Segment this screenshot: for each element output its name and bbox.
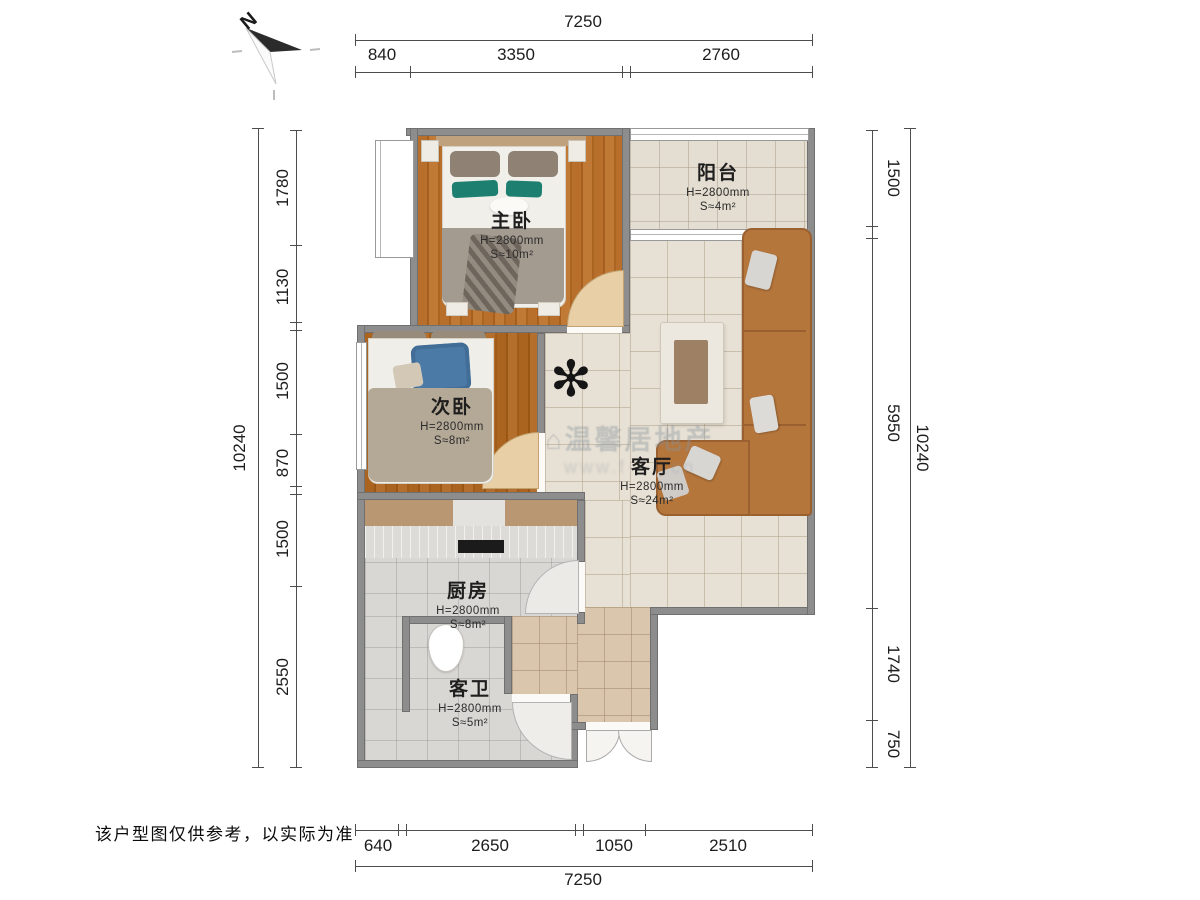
tick xyxy=(866,720,878,721)
dim-seg: 3350 xyxy=(481,45,551,65)
dim-seg: 5950 xyxy=(883,388,903,458)
window-glass-line xyxy=(380,141,381,257)
dim-seg: 1130 xyxy=(273,252,293,322)
tick xyxy=(866,238,878,239)
dim-seg: 1500 xyxy=(273,346,293,416)
dim-line xyxy=(355,72,812,73)
kitchen-counter-wood-left xyxy=(365,500,453,526)
tick xyxy=(812,824,813,836)
pillow-teal xyxy=(506,180,543,197)
pillow-small xyxy=(392,362,424,390)
window-glass-line xyxy=(361,343,362,469)
dim-seg: 2550 xyxy=(273,642,293,712)
tick xyxy=(812,66,813,78)
second-bedroom-window xyxy=(356,342,367,470)
tick xyxy=(630,66,631,78)
dim-line xyxy=(355,40,812,41)
tick xyxy=(904,128,916,129)
tick xyxy=(290,130,302,131)
dim-seg: 870 xyxy=(273,428,293,498)
tick xyxy=(622,66,623,78)
room-height: H=2800mm xyxy=(582,481,722,493)
tick xyxy=(866,767,878,768)
tick xyxy=(355,66,356,78)
room-name: 次卧 xyxy=(382,392,522,419)
dim-seg: 2510 xyxy=(693,836,763,856)
room-name: 厨房 xyxy=(398,576,538,603)
tick xyxy=(290,322,302,323)
cooktop xyxy=(458,540,504,553)
wall xyxy=(357,760,578,768)
room-name: 阳台 xyxy=(648,158,788,185)
room-area: S≈8m² xyxy=(382,435,522,447)
plant-icon: ✻ xyxy=(546,354,596,404)
dim-line xyxy=(296,130,297,768)
room-height: H=2800mm xyxy=(382,421,522,433)
room-label-bath: 客卫 H=2800mm S≈5m² xyxy=(400,674,540,729)
wall xyxy=(650,607,658,730)
room-name: 客厅 xyxy=(582,452,722,479)
dim-seg: 840 xyxy=(347,45,417,65)
room-area: S≈4m² xyxy=(648,201,788,213)
entry-door-left-swing xyxy=(586,730,620,762)
dim-total-left: 10240 xyxy=(230,413,250,483)
tick xyxy=(290,330,302,331)
dim-seg: 1500 xyxy=(883,143,903,213)
bed-foot xyxy=(446,302,468,316)
wall xyxy=(570,722,586,730)
window-glass-line xyxy=(631,134,808,135)
tick xyxy=(866,608,878,609)
tick xyxy=(290,245,302,246)
tick xyxy=(252,767,264,768)
room-name: 客卫 xyxy=(400,674,540,701)
room-label-living: 客厅 H=2800mm S≈24m² xyxy=(582,452,722,507)
bed-foot xyxy=(538,302,560,316)
wall xyxy=(357,492,585,500)
room-height: H=2800mm xyxy=(648,187,788,199)
pillow-teal xyxy=(452,180,499,198)
room-area: S≈8m² xyxy=(398,619,538,631)
dim-seg: 1050 xyxy=(579,836,649,856)
tick xyxy=(904,767,916,768)
room-height: H=2800mm xyxy=(398,605,538,617)
kitchen-counter-wood-right xyxy=(505,500,577,526)
tick xyxy=(583,824,584,836)
room-label-master: 主卧 H=2800mm S≈10m² xyxy=(442,206,582,261)
dim-total-bottom: 7250 xyxy=(548,870,618,890)
disclaimer-text: 该户型图仅供参考，以实际为准 xyxy=(95,820,354,845)
nightstand xyxy=(568,140,586,162)
dim-seg: 750 xyxy=(883,709,903,779)
tick xyxy=(290,767,302,768)
tick xyxy=(398,824,399,836)
dim-line xyxy=(258,128,259,768)
dim-seg: 1500 xyxy=(273,504,293,574)
room-label-second: 次卧 H=2800mm S≈8m² xyxy=(382,392,522,447)
dim-seg: 2650 xyxy=(455,836,525,856)
balcony-window xyxy=(630,128,809,141)
room-area: S≈10m² xyxy=(442,249,582,261)
dim-line xyxy=(355,866,812,867)
tick xyxy=(290,586,302,587)
dim-total-right: 10240 xyxy=(912,413,932,483)
room-height: H=2800mm xyxy=(400,703,540,715)
master-bay-window xyxy=(375,140,414,258)
tick xyxy=(645,824,646,836)
dim-seg: 2760 xyxy=(686,45,756,65)
room-area: S≈24m² xyxy=(582,495,722,507)
sofa-seam xyxy=(744,330,806,332)
tick xyxy=(812,860,813,872)
room-area: S≈5m² xyxy=(400,717,540,729)
tick xyxy=(355,824,356,836)
dim-seg: 1780 xyxy=(273,153,293,223)
room-floor-hall xyxy=(585,500,630,607)
pillow xyxy=(450,151,500,177)
tick xyxy=(575,824,576,836)
wall xyxy=(650,607,815,615)
tick xyxy=(866,130,878,131)
tick xyxy=(812,34,813,46)
entry-door-right-swing xyxy=(618,730,652,762)
room-name: 主卧 xyxy=(442,206,582,233)
room-height: H=2800mm xyxy=(442,235,582,247)
master-bed-headboard xyxy=(436,136,586,146)
tick xyxy=(355,860,356,872)
room-label-balcony: 阳台 H=2800mm S≈4m² xyxy=(648,158,788,213)
wall xyxy=(406,128,630,136)
dim-seg: 1740 xyxy=(883,629,903,699)
pillow xyxy=(508,151,558,177)
entry-door-threshold xyxy=(586,722,650,730)
tick xyxy=(410,66,411,78)
wall xyxy=(577,500,585,562)
north-compass-icon: N xyxy=(228,6,324,102)
room-floor-entry xyxy=(577,607,650,722)
nightstand xyxy=(421,140,439,162)
tick xyxy=(866,226,878,227)
dim-line xyxy=(910,128,911,768)
dim-total-top: 7250 xyxy=(548,12,618,32)
compass-north-label: N xyxy=(236,8,261,34)
floor-plan-canvas: N 7250 840 3350 2760 640 2650 1050 2510 … xyxy=(0,0,1200,900)
tick xyxy=(252,128,264,129)
coffee-table-top xyxy=(674,340,708,404)
tick xyxy=(406,824,407,836)
room-label-kitchen: 厨房 H=2800mm S≈8m² xyxy=(398,576,538,631)
